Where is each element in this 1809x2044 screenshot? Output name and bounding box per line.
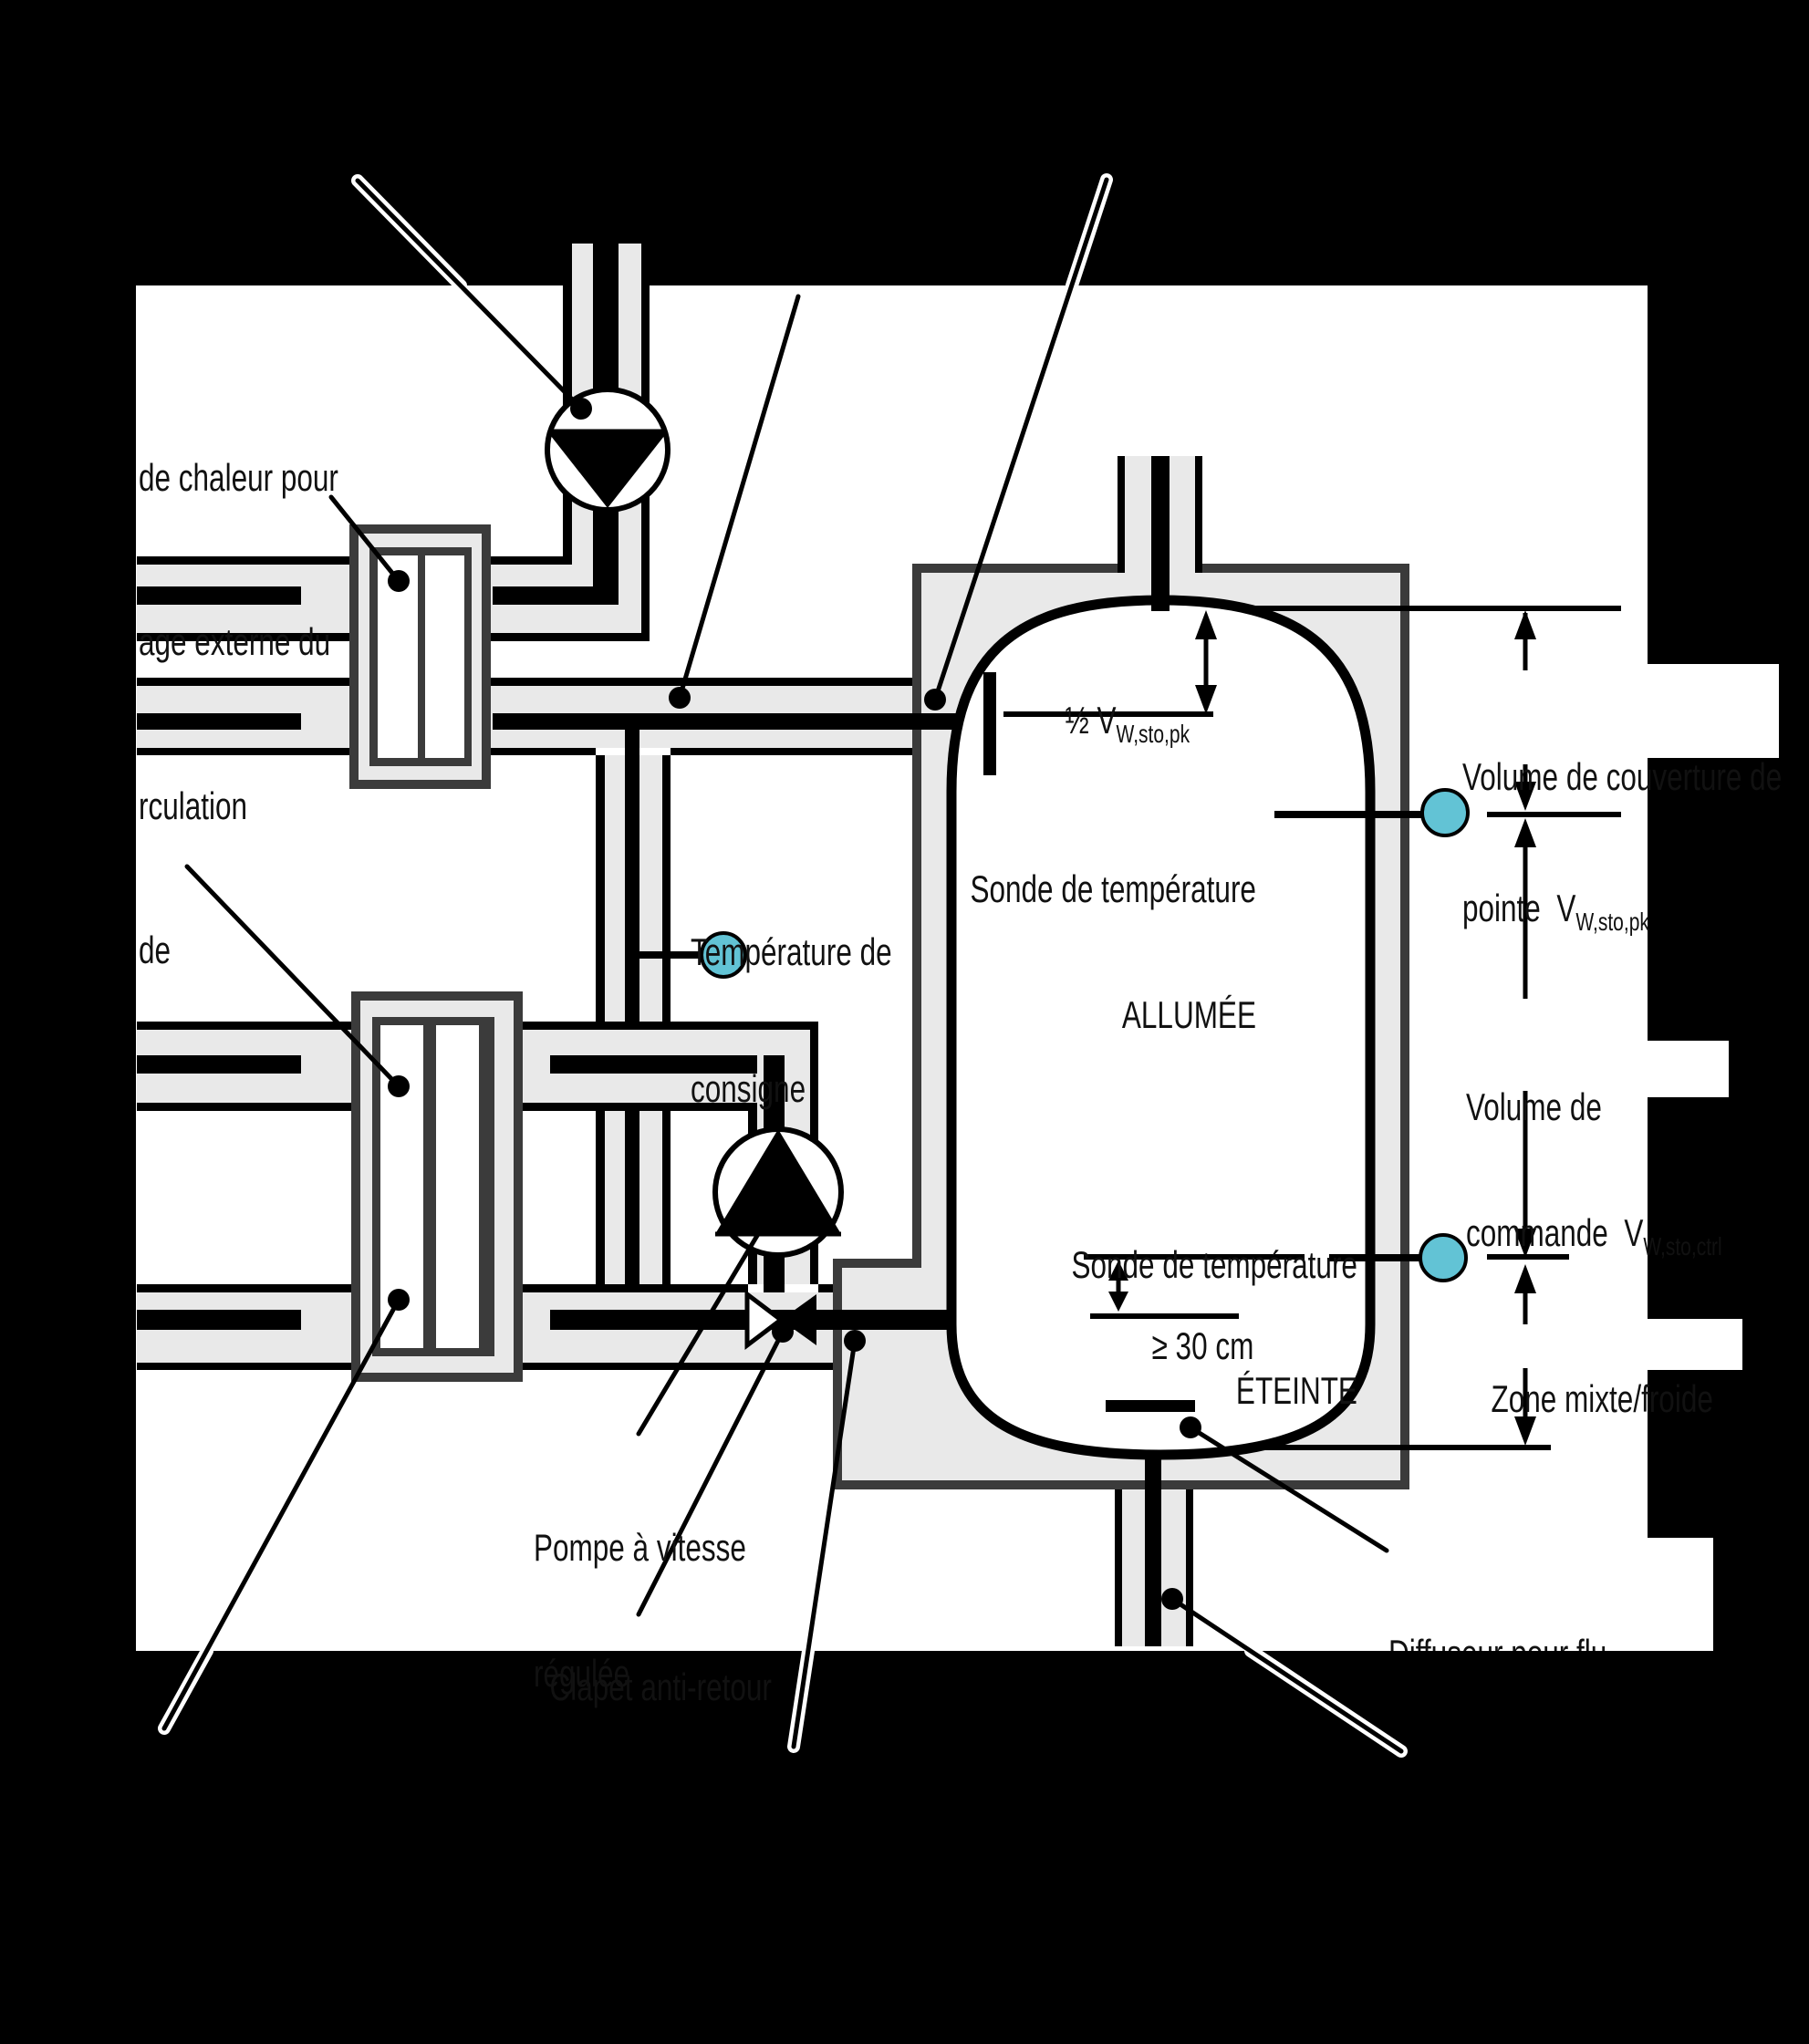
label-line: Température de [691, 929, 892, 975]
label-line: Clapet anti-retour [550, 1665, 772, 1708]
formula-main: pointe V [1462, 887, 1575, 929]
label-heat-exchanger-top: de chaleur pour age externe du rculation [139, 341, 338, 888]
label-control-volume: Volume de commande VW,sto,ctrl [1466, 1002, 1722, 1301]
formula-subscript: W,sto,pk [1575, 908, 1649, 936]
label-line: pointe VW,sto,pk [1462, 887, 1782, 935]
label-line: ÉTEINTE [1072, 1370, 1357, 1412]
sensor-well-bar [983, 672, 996, 775]
label-line: Diffuseur pour flu [1388, 1633, 1606, 1651]
label-line: de [139, 925, 171, 976]
sensor-on-dot [1422, 790, 1468, 835]
label-line: Volume de couverture de [1462, 755, 1782, 799]
label-heat-exchanger-bottom: de [139, 823, 171, 1027]
label-diffuser-clip: Diffuseur pour flu entrant à faible impu… [1383, 1538, 1717, 1651]
label-line: de chaleur pour [139, 451, 338, 505]
label-line: ALLUMÉE [971, 994, 1256, 1036]
label-line: Zone mixte/froide [1492, 1377, 1713, 1420]
label-line: Pompe à vitesse [534, 1527, 746, 1569]
formula-main: commande V [1466, 1211, 1643, 1254]
label-line: age externe du [139, 615, 338, 669]
formula-subscript: W,sto,pk [1117, 720, 1190, 748]
label-check-valve: Clapet anti-retour [534, 1611, 772, 1713]
formula-subscript: W,sto,ctrl [1643, 1232, 1721, 1261]
pump-top-icon [547, 389, 668, 510]
tank-bottom-pipe [1145, 1457, 1161, 1646]
label-line: ≥ 30 cm [1152, 1324, 1254, 1367]
label-sensor-on: Sonde de température ALLUMÉE [971, 784, 1256, 1078]
label-line: Sonde de température [971, 868, 1256, 910]
label-line: commande VW,sto,ctrl [1466, 1212, 1722, 1259]
label-min-distance: ≥ 30 cm [1136, 1270, 1253, 1372]
label-mixed-zone: Zone mixte/froide [1475, 1323, 1713, 1425]
label-peak-cover-volume: Volume de couverture de pointe VW,sto,pk [1462, 668, 1782, 979]
formula-main: ½ V [1066, 699, 1117, 742]
heat-exchanger-bottom [351, 991, 523, 1382]
label-diffuser: Diffuseur pour flu entrant à faible impu… [1388, 1549, 1606, 1651]
label-half-peak-volume: ½ VW,sto,pk [1049, 644, 1190, 751]
sensor-off-dot [1420, 1235, 1466, 1281]
heat-exchanger-top [349, 524, 491, 789]
diagram-stage: de chaleur pour age externe du rculation… [0, 0, 1809, 2044]
label-setpoint-temperature: Température de consigne [691, 838, 892, 1157]
label-line: consigne [691, 1066, 892, 1112]
label-line: Volume de [1466, 1086, 1722, 1128]
tank-top-pipe [1151, 456, 1170, 611]
